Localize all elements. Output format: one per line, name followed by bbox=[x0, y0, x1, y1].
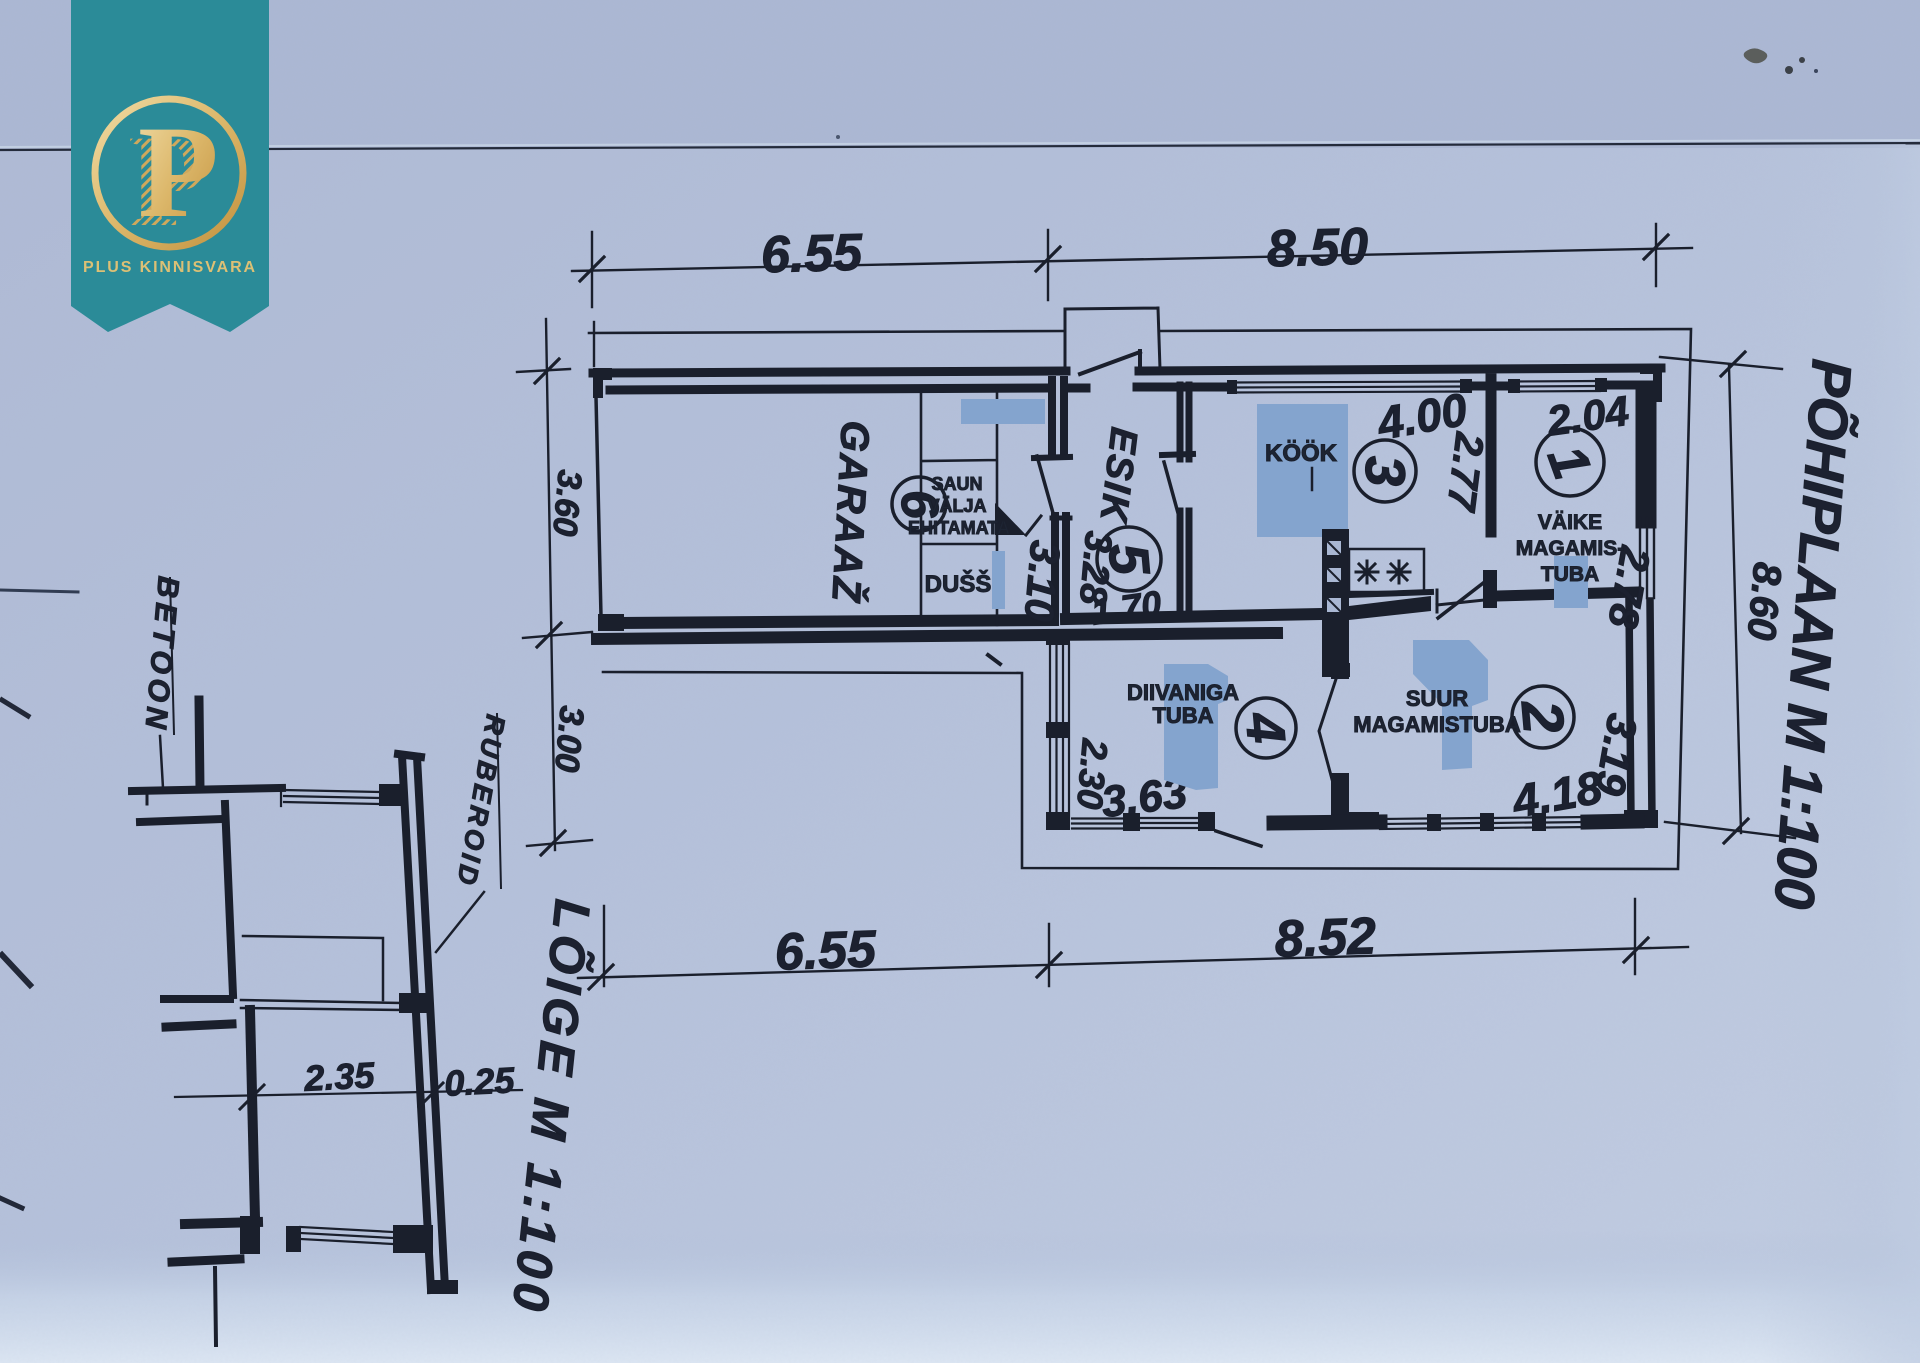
svg-text:4: 4 bbox=[1234, 710, 1296, 746]
svg-text:KÖÖK: KÖÖK bbox=[1265, 440, 1338, 467]
svg-text:6.55: 6.55 bbox=[760, 224, 864, 285]
svg-text:8.60: 8.60 bbox=[1739, 560, 1790, 641]
svg-text:SUUR: SUUR bbox=[1406, 686, 1468, 711]
svg-text:6.55: 6.55 bbox=[774, 920, 878, 982]
svg-text:TUBA: TUBA bbox=[1152, 703, 1213, 728]
svg-text:0.25: 0.25 bbox=[443, 1059, 516, 1104]
svg-text:3.60: 3.60 bbox=[545, 468, 589, 537]
svg-text:MAGAMIS-: MAGAMIS- bbox=[1516, 537, 1625, 560]
svg-text:PLUS KINNISVARA: PLUS KINNISVARA bbox=[83, 259, 257, 276]
svg-text:8.52: 8.52 bbox=[1274, 907, 1377, 968]
svg-text:8.50: 8.50 bbox=[1266, 218, 1369, 279]
svg-text:VÄIKE: VÄIKE bbox=[1538, 511, 1602, 534]
svg-text:3.00: 3.00 bbox=[547, 704, 591, 773]
svg-text:MAGAMISTUBA: MAGAMISTUBA bbox=[1353, 712, 1521, 737]
svg-text:DUŠŠ: DUŠŠ bbox=[925, 570, 992, 598]
svg-text:P: P bbox=[138, 98, 219, 245]
svg-text:3: 3 bbox=[1353, 454, 1417, 487]
svg-text:3.10: 3.10 bbox=[1015, 538, 1069, 624]
svg-text:SAUN: SAUN bbox=[931, 474, 982, 494]
svg-text:VÄLJA: VÄLJA bbox=[927, 496, 986, 516]
svg-text:EHITAMATA: EHITAMATA bbox=[908, 518, 1010, 538]
svg-text:DIIVANIGA: DIIVANIGA bbox=[1127, 680, 1239, 705]
svg-text:TUBA: TUBA bbox=[1541, 563, 1599, 586]
svg-text:2.35: 2.35 bbox=[302, 1054, 376, 1099]
